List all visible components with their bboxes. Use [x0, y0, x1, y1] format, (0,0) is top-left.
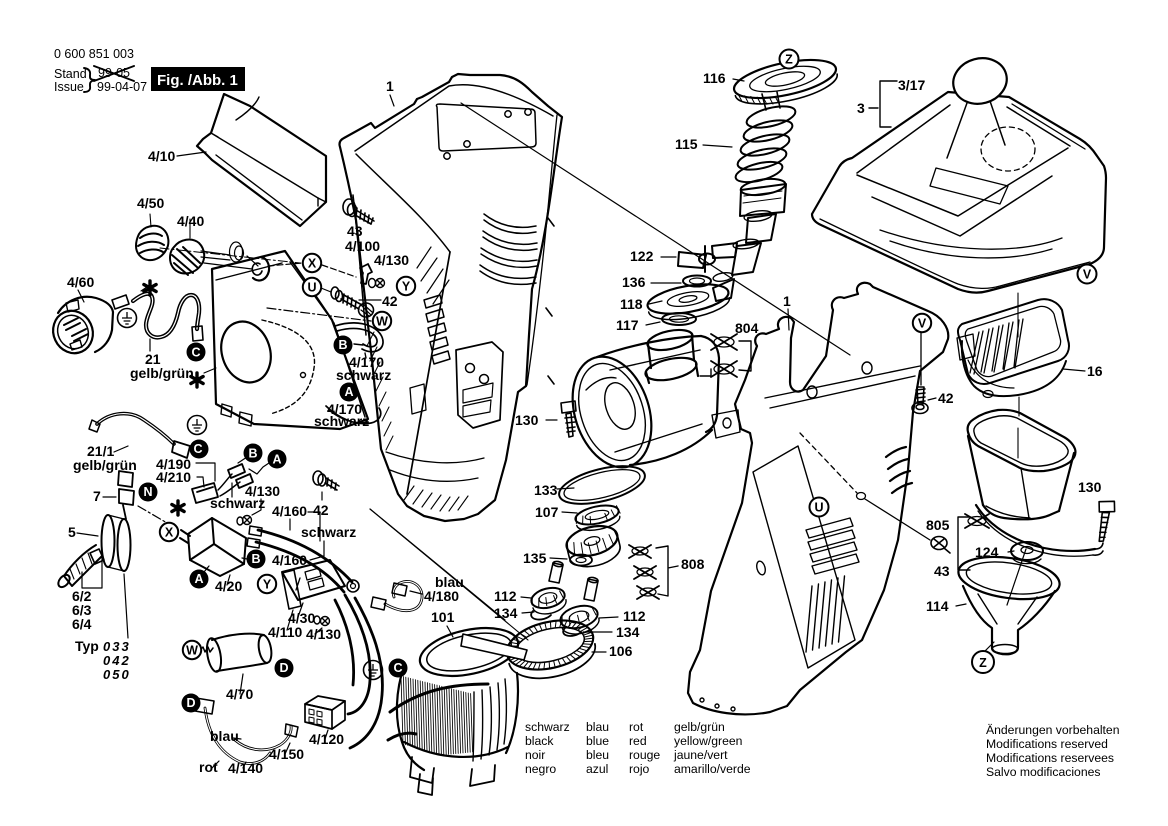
- svg-text:gelb/grün: gelb/grün: [674, 720, 725, 734]
- svg-text:122: 122: [630, 248, 654, 264]
- svg-text:schwarz: schwarz: [314, 413, 369, 429]
- svg-text:3: 3: [857, 100, 865, 116]
- svg-text:4/140: 4/140: [228, 760, 263, 776]
- svg-text:42: 42: [382, 293, 398, 309]
- svg-text:107: 107: [535, 504, 559, 520]
- svg-text:Typ: Typ: [75, 638, 99, 654]
- svg-text:V: V: [918, 317, 927, 331]
- svg-text:C: C: [393, 661, 402, 675]
- svg-text:42: 42: [938, 390, 954, 406]
- svg-text:red: red: [629, 734, 647, 748]
- svg-text:134: 134: [494, 605, 518, 621]
- svg-text:W: W: [186, 644, 198, 658]
- svg-text:4/70: 4/70: [226, 686, 253, 702]
- svg-text:D: D: [186, 696, 195, 710]
- svg-text:negro: negro: [525, 762, 556, 776]
- svg-text:B: B: [251, 552, 260, 566]
- svg-text:Y: Y: [263, 578, 272, 592]
- svg-text:black: black: [525, 734, 554, 748]
- svg-text:112: 112: [494, 588, 517, 604]
- svg-text:X: X: [165, 526, 174, 540]
- svg-text:schwarz: schwarz: [525, 720, 570, 734]
- svg-text:rouge: rouge: [629, 748, 660, 762]
- svg-text:Modifications reserved: Modifications reserved: [986, 737, 1108, 751]
- svg-text:130: 130: [515, 412, 539, 428]
- svg-text:B: B: [248, 447, 257, 461]
- svg-text:A: A: [272, 453, 281, 467]
- svg-text:050: 050: [103, 667, 131, 682]
- svg-text:U: U: [307, 281, 316, 295]
- svg-text:4/180: 4/180: [424, 588, 459, 604]
- svg-text:N: N: [143, 485, 152, 499]
- svg-text:4/160: 4/160: [272, 503, 307, 519]
- svg-text:4/40: 4/40: [177, 213, 204, 229]
- svg-text:Modifications reservees: Modifications reservees: [986, 751, 1114, 765]
- svg-text:blue: blue: [586, 734, 609, 748]
- svg-text:133: 133: [534, 482, 558, 498]
- svg-text:118: 118: [620, 296, 643, 312]
- svg-text:gelb/grün: gelb/grün: [73, 457, 137, 473]
- svg-text:schwarz: schwarz: [336, 367, 391, 383]
- svg-text:azul: azul: [586, 762, 608, 776]
- svg-text:rot: rot: [629, 720, 644, 734]
- svg-text:Y: Y: [402, 280, 411, 294]
- svg-text:X: X: [308, 257, 317, 271]
- svg-text:blau: blau: [435, 574, 464, 590]
- svg-text:808: 808: [681, 556, 705, 572]
- svg-text:4/130: 4/130: [306, 626, 341, 642]
- svg-text:schwarz: schwarz: [301, 524, 356, 540]
- svg-text:V: V: [1083, 268, 1092, 282]
- svg-text:0 600 851 003: 0 600 851 003: [54, 47, 134, 61]
- svg-text:1: 1: [783, 293, 791, 309]
- svg-text:115: 115: [675, 136, 698, 152]
- svg-text:4/50: 4/50: [137, 195, 164, 211]
- svg-text:99-04-07: 99-04-07: [97, 80, 147, 94]
- svg-text:4/150: 4/150: [269, 746, 304, 762]
- svg-text:134: 134: [616, 624, 640, 640]
- svg-text:4/130: 4/130: [374, 252, 409, 268]
- svg-text:A: A: [344, 385, 353, 399]
- svg-text:A: A: [194, 572, 203, 586]
- svg-text:033: 033: [103, 639, 131, 654]
- svg-text:42: 42: [313, 502, 329, 518]
- svg-text:124: 124: [975, 544, 999, 560]
- svg-text:Z: Z: [785, 53, 793, 67]
- svg-text:C: C: [191, 346, 200, 360]
- svg-text:Stand: Stand: [54, 67, 87, 81]
- svg-text:114: 114: [926, 598, 949, 614]
- svg-text:6/4: 6/4: [72, 616, 92, 632]
- svg-text:Z: Z: [979, 656, 987, 670]
- svg-text:W: W: [376, 315, 388, 329]
- svg-text:Salvo modificaciones: Salvo modificaciones: [986, 765, 1100, 779]
- svg-text:B: B: [338, 338, 347, 352]
- svg-text:Änderungen vorbehalten: Änderungen vorbehalten: [986, 723, 1120, 737]
- svg-text:yellow/green: yellow/green: [674, 734, 742, 748]
- svg-text:101: 101: [431, 609, 455, 625]
- svg-text:43: 43: [934, 563, 950, 579]
- svg-text:amarillo/verde: amarillo/verde: [674, 762, 751, 776]
- svg-text:042: 042: [103, 653, 131, 668]
- svg-text:U: U: [814, 501, 823, 515]
- svg-text:blau: blau: [586, 720, 609, 734]
- svg-text:805: 805: [926, 517, 950, 533]
- svg-text:117: 117: [616, 317, 639, 333]
- svg-text:106: 106: [609, 643, 633, 659]
- svg-text:43: 43: [347, 223, 363, 239]
- svg-text:116: 116: [703, 70, 726, 86]
- svg-text:4/20: 4/20: [215, 578, 242, 594]
- svg-text:16: 16: [1087, 363, 1103, 379]
- svg-text:D: D: [279, 661, 288, 675]
- svg-text:5: 5: [68, 524, 76, 540]
- svg-text:804: 804: [735, 320, 759, 336]
- svg-text:gelb/grün: gelb/grün: [130, 365, 194, 381]
- svg-text:noir: noir: [525, 748, 545, 762]
- svg-text:7: 7: [93, 488, 101, 504]
- svg-text:4/110: 4/110: [268, 624, 302, 640]
- svg-text:3/17: 3/17: [898, 77, 925, 93]
- svg-text:C: C: [193, 442, 202, 456]
- svg-text:130: 130: [1078, 479, 1102, 495]
- svg-text:rojo: rojo: [629, 762, 650, 776]
- svg-text:135: 135: [523, 550, 547, 566]
- svg-text:4/130: 4/130: [245, 483, 280, 499]
- svg-text:4/120: 4/120: [309, 731, 344, 747]
- svg-text:4/210: 4/210: [156, 469, 191, 485]
- svg-text:1: 1: [386, 78, 394, 94]
- svg-text:136: 136: [622, 274, 646, 290]
- svg-text:bleu: bleu: [586, 748, 609, 762]
- svg-text:jaune/vert: jaune/vert: [673, 748, 728, 762]
- svg-text:4/60: 4/60: [67, 274, 94, 290]
- svg-text:blau: blau: [210, 728, 239, 744]
- svg-text:4/10: 4/10: [148, 148, 175, 164]
- svg-text:Fig. /Abb. 1: Fig. /Abb. 1: [157, 72, 238, 89]
- svg-text:112: 112: [623, 608, 646, 624]
- svg-text:Issue: Issue: [54, 80, 84, 94]
- svg-text:4/160: 4/160: [272, 552, 307, 568]
- svg-text:rot: rot: [199, 759, 218, 775]
